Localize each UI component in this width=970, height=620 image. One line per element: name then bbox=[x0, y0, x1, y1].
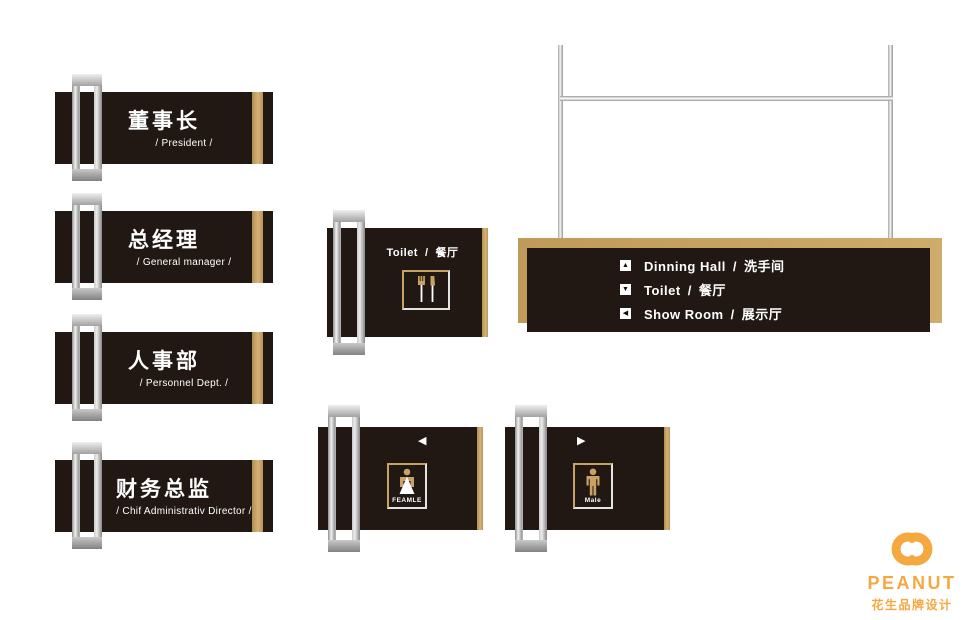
directory-row: ▲ Dinning Hall/洗手间 bbox=[620, 257, 784, 274]
hanging-pole-left bbox=[558, 45, 563, 248]
signage-design-board: 董事长 / President / 总经理 / General manager … bbox=[0, 0, 970, 620]
direction-left-icon: ◀ bbox=[620, 308, 631, 319]
gold-stripe bbox=[252, 332, 263, 404]
mounting-bracket bbox=[72, 193, 102, 300]
brand-tagline: 花生品牌设计 bbox=[856, 596, 968, 613]
gold-stripe bbox=[477, 427, 483, 530]
mounting-bracket bbox=[72, 442, 102, 549]
restroom-label: Male bbox=[585, 498, 601, 505]
mounting-bracket bbox=[72, 314, 102, 421]
direction-up-icon: ▲ bbox=[620, 260, 631, 271]
peanut-logo-icon bbox=[886, 531, 938, 567]
fork-knife-icon bbox=[413, 275, 439, 305]
hanging-crossbar bbox=[560, 96, 893, 101]
brand-logo: PEANUT 花生品牌设计 bbox=[856, 531, 968, 613]
direction-down-icon: ▼ bbox=[620, 284, 631, 295]
label-en: Toilet bbox=[386, 247, 418, 259]
directory-row: ▼ Toilet/餐厅 bbox=[620, 281, 784, 298]
arrow-left-icon: ◀ bbox=[418, 436, 426, 447]
mounting-bracket bbox=[72, 74, 102, 181]
mounting-bracket bbox=[515, 405, 547, 552]
directory-label: Show Room/展示厅 bbox=[644, 304, 782, 323]
separator: / bbox=[731, 307, 735, 322]
mounting-bracket bbox=[333, 210, 365, 355]
restroom-label: FEAMLE bbox=[392, 498, 422, 505]
directory-rows: ▲ Dinning Hall/洗手间 ▼ Toilet/餐厅 ◀ Show Ro… bbox=[620, 257, 784, 322]
gold-stripe bbox=[252, 211, 263, 283]
gold-stripe bbox=[252, 92, 263, 164]
label-zh: 餐厅 bbox=[436, 247, 459, 259]
separator: / bbox=[688, 283, 692, 298]
arrow-right-icon: ▶ bbox=[577, 436, 585, 447]
separator: / bbox=[425, 247, 429, 259]
directory-label: Dinning Hall/洗手间 bbox=[644, 256, 784, 275]
gold-stripe bbox=[482, 228, 488, 337]
gold-stripe bbox=[664, 427, 670, 530]
sign-title: Toilet/餐厅 bbox=[365, 244, 480, 260]
dining-icon-frame bbox=[402, 270, 450, 310]
gold-stripe bbox=[252, 460, 263, 532]
male-figure-icon bbox=[580, 468, 606, 496]
separator: / bbox=[733, 259, 737, 274]
female-icon-frame: FEAMLE bbox=[387, 463, 427, 509]
brand-name: PEANUT bbox=[856, 573, 968, 594]
directory-sign: ▲ Dinning Hall/洗手间 ▼ Toilet/餐厅 ◀ Show Ro… bbox=[527, 248, 930, 332]
female-figure-icon bbox=[394, 468, 420, 496]
directory-label: Toilet/餐厅 bbox=[644, 280, 726, 299]
directory-row: ◀ Show Room/展示厅 bbox=[620, 305, 784, 322]
male-icon-frame: Male bbox=[573, 463, 613, 509]
hanging-pole-right bbox=[888, 45, 893, 240]
mounting-bracket bbox=[328, 405, 360, 552]
